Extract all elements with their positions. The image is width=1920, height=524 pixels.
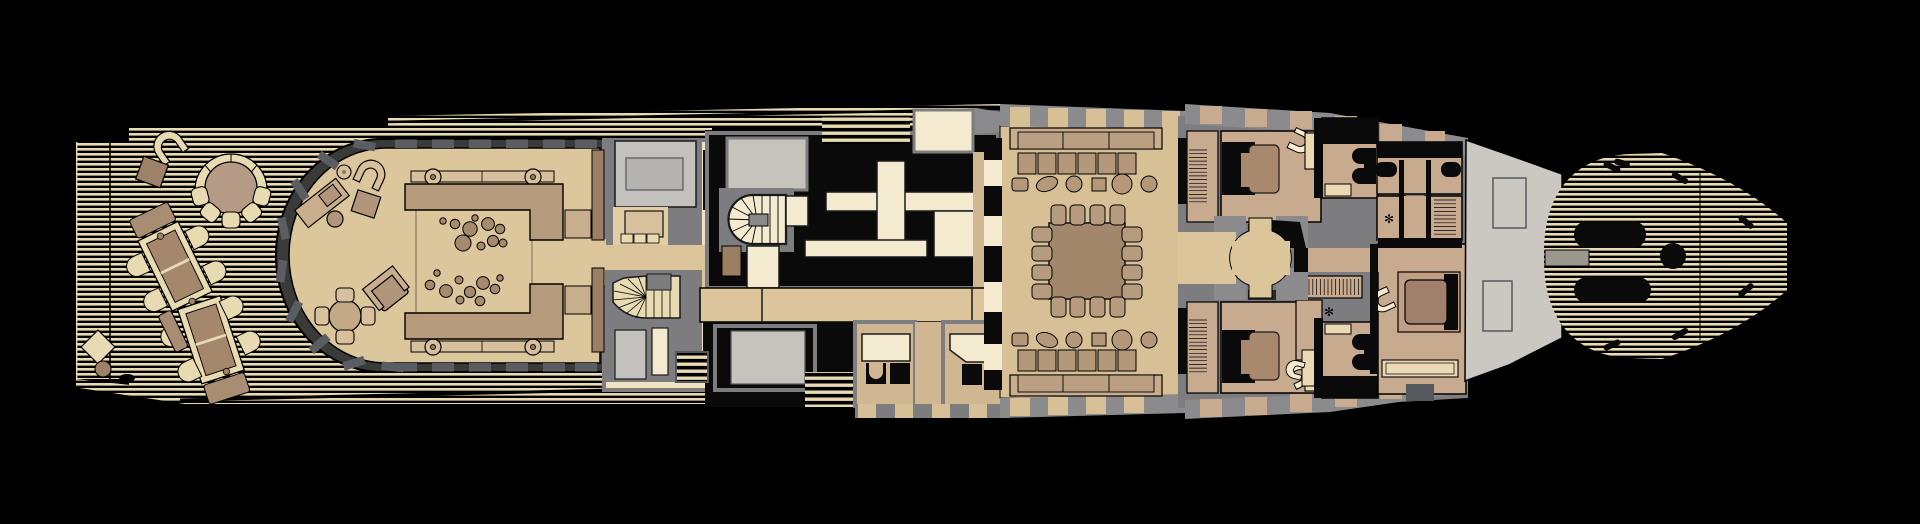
svg-text:✻: ✻ [1324,305,1334,319]
svg-text:✻: ✻ [1384,212,1394,226]
